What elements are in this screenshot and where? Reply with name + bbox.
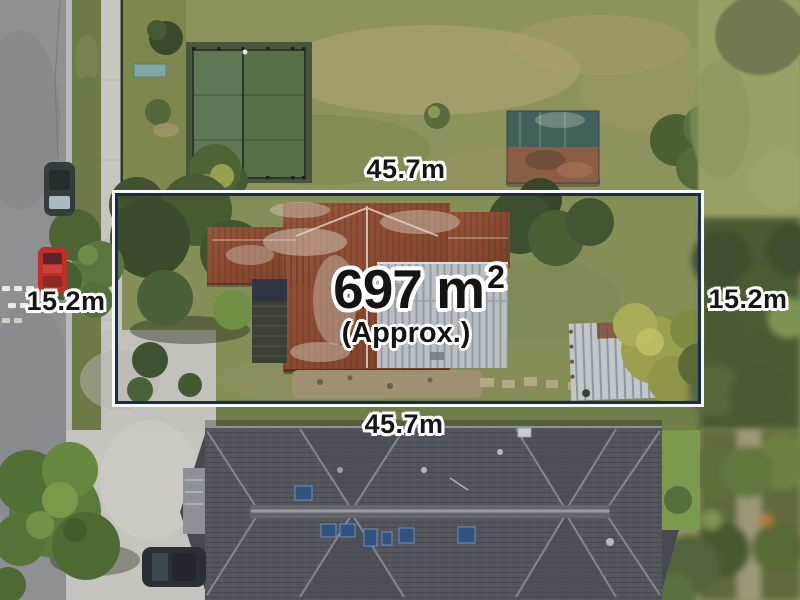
dimension-label-left-depth: 15.2m	[26, 288, 105, 315]
pergola	[252, 279, 287, 363]
area-value: 697 m	[333, 258, 484, 320]
front-fence	[121, 0, 124, 192]
area-label: 697 m2	[333, 262, 505, 317]
driveway-car	[142, 547, 206, 587]
dimension-label-right-depth: 15.2m	[708, 286, 787, 313]
front-house-roof	[180, 420, 684, 600]
neighbour-blur-top	[690, 0, 800, 218]
side-porch	[183, 468, 205, 534]
park-bench	[134, 64, 166, 77]
skylight	[518, 428, 531, 437]
neighbour-blur-mid	[689, 218, 800, 430]
garden-shed	[506, 111, 600, 187]
park-reserve	[121, 0, 187, 192]
parked-suv	[44, 162, 75, 216]
aerial-property-photo: 45.7m 45.7m 15.2m 15.2m 697 m2 (Approx.)	[0, 0, 800, 600]
side-lawn	[662, 430, 700, 530]
dimension-label-bottom-width: 45.7m	[364, 411, 443, 438]
dimension-label-top-width: 45.7m	[366, 156, 445, 183]
area-approx-label: (Approx.)	[342, 319, 471, 348]
area-exponent: 2	[487, 259, 505, 295]
